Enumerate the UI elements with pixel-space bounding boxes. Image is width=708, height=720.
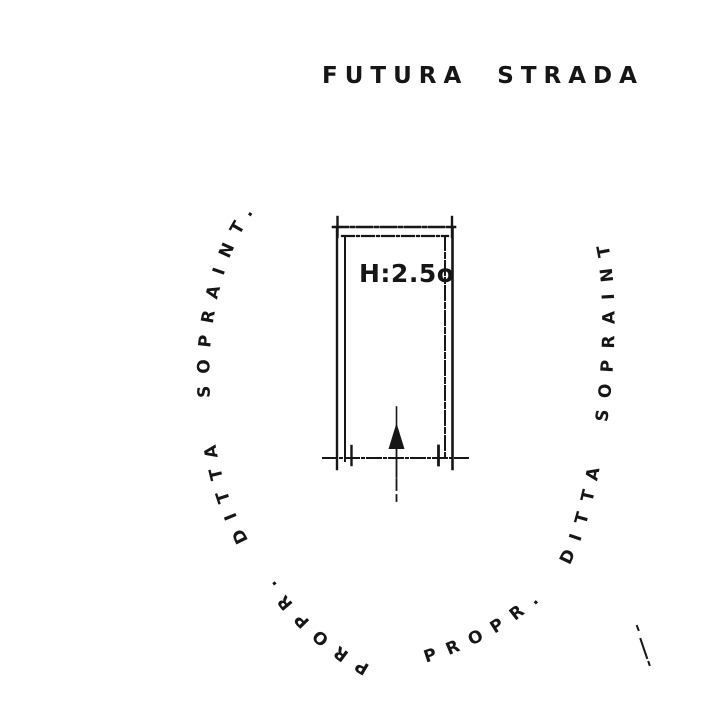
- street-name-label: FUTURA STRADA: [322, 63, 644, 89]
- entrance-arrow-head-icon: [389, 423, 405, 449]
- stray-ink-mark: [637, 626, 650, 665]
- gate-height-label: H:2.5o: [359, 259, 454, 288]
- plan-drawing-canvas: FUTURA STRADA H:2.5o PROPR. DITTA SO: [0, 0, 708, 720]
- entrance-arrow: [389, 407, 405, 501]
- right-boundary-label-text: PROPR. DITTA SOPRAINT.: [0, 0, 620, 667]
- right-boundary-label: PROPR. DITTA SOPRAINT.: [0, 0, 620, 667]
- plan-sheet: FUTURA STRADA H:2.5o PROPR. DITTA SO: [0, 0, 708, 720]
